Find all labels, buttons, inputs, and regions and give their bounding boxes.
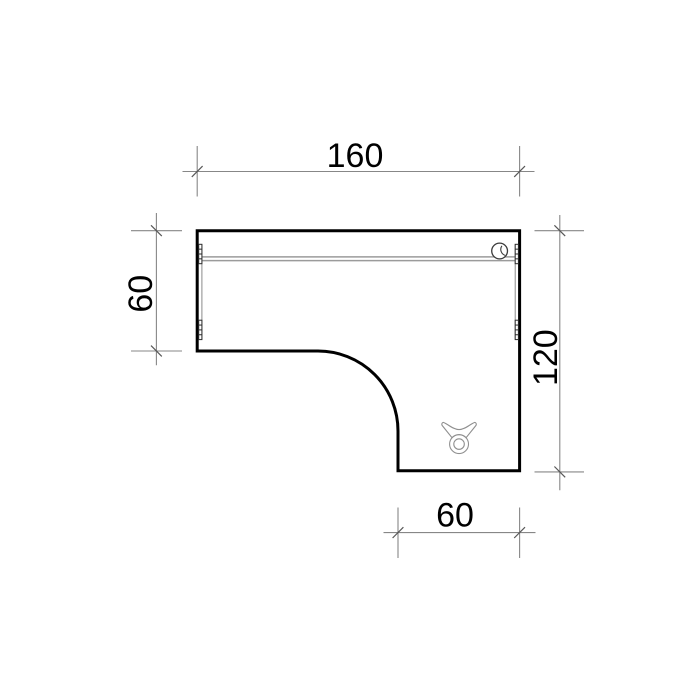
svg-text:120: 120 [527,329,565,386]
svg-text:60: 60 [436,497,474,535]
svg-text:160: 160 [327,137,384,175]
svg-text:60: 60 [122,275,160,313]
